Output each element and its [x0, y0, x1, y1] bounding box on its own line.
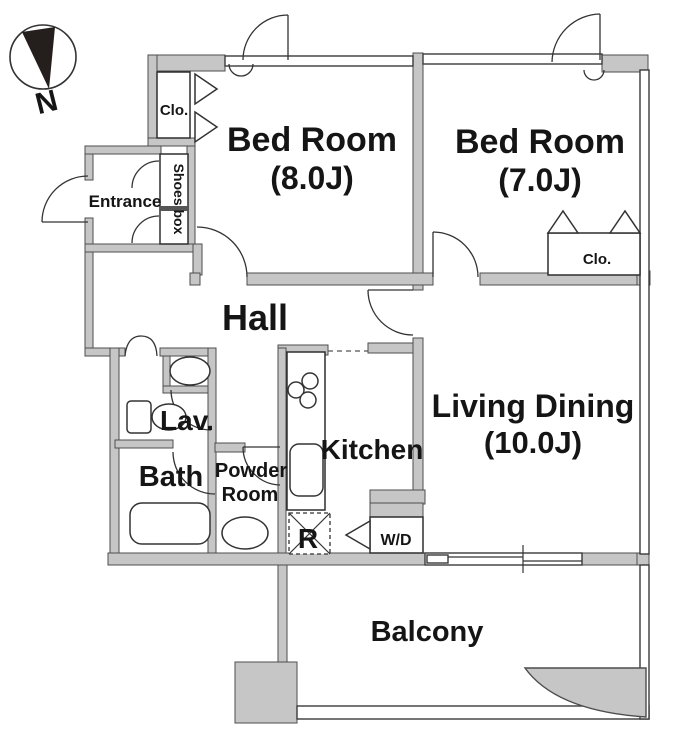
- bedroom1-top-casement-window: [229, 15, 288, 76]
- powder-sink-icon: [222, 517, 268, 549]
- bedroom2-top-window: [423, 54, 602, 64]
- powder-room-label-line2: Room: [222, 484, 279, 506]
- balcony-label: Balcony: [371, 616, 484, 648]
- bathtub-icon: [130, 503, 210, 544]
- bedroom1-label: Bed Room: [227, 121, 397, 159]
- entrance-label: Entrance: [89, 192, 162, 211]
- powder-room-label-line1: Powder: [215, 460, 287, 482]
- washer-dryer-label: W/D: [380, 532, 411, 549]
- balcony-left-wall: [278, 565, 287, 664]
- floor-plan: N: [0, 0, 679, 754]
- pillar: [235, 662, 297, 723]
- entrance-door: [42, 176, 88, 222]
- living-dining-door: [368, 290, 413, 335]
- bedroom2-top-casement-window: [552, 14, 604, 80]
- washer-dryer-top-wall: [370, 490, 425, 504]
- bedroom1-door: [197, 227, 247, 277]
- bedroom2-label: Bed Room: [455, 123, 625, 161]
- north-label: N: [32, 84, 61, 121]
- washer-dryer-door: [346, 521, 370, 549]
- bedroom2-size-label: (7.0J): [498, 162, 582, 198]
- hall-label: Hall: [222, 297, 288, 338]
- closet-bedroom2-label: Clo.: [583, 251, 611, 268]
- shoes-box-label: Shoes box: [171, 164, 187, 235]
- kitchen-sink-icon: [290, 444, 323, 496]
- bedroom1-size-label: (8.0J): [270, 160, 354, 196]
- living-dining-size-label: (10.0J): [484, 425, 582, 460]
- closet-top-label: Clo.: [160, 102, 188, 119]
- closet-top-folding-doors: [195, 74, 217, 142]
- refrigerator-label: R: [298, 523, 318, 554]
- wash-basin-icon: [170, 357, 210, 385]
- living-dining-label: Living Dining: [432, 388, 635, 424]
- closet-bedroom2-folding-doors: [548, 211, 640, 233]
- bedroom2-door: [433, 232, 478, 277]
- compass: N: [10, 25, 76, 121]
- right-window-wall: [640, 70, 649, 554]
- kitchen-label: Kitchen: [321, 434, 424, 465]
- north-needle-icon: [22, 27, 55, 89]
- bath-label: Bath: [139, 461, 203, 493]
- floorplan-svg: N: [0, 0, 679, 754]
- lavatory-label: Lav.: [160, 405, 214, 436]
